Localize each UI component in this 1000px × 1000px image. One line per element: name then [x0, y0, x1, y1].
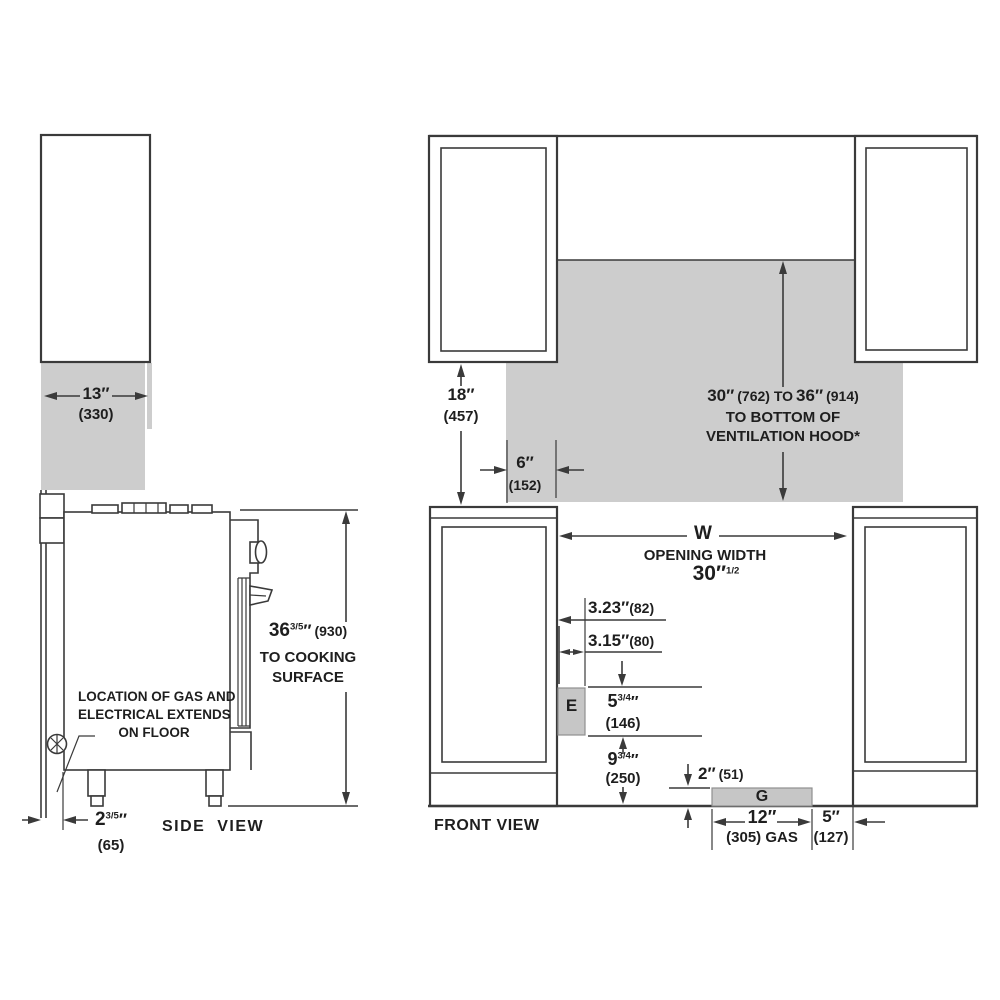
electrical-block-label: E [558, 697, 585, 715]
installation-diagram: 13″ (330) LOCATION OF GAS AND ELECTRICAL… [0, 0, 1000, 1000]
front-dim-9-3-4-value: 93/4″ [592, 750, 654, 770]
front-dim-6-metric: (152) [500, 478, 550, 493]
front-dim-3-23: 3.23″(82) [588, 599, 654, 618]
side-view-shaded-wall-area [41, 363, 152, 490]
gas-note-line2: ELECTRICAL EXTENDS [78, 708, 230, 722]
front-view-right-base-cabinet [853, 507, 977, 806]
front-view-left-base-cabinet [430, 507, 557, 806]
hood-dim-line2: TO BOTTOM OF [703, 410, 863, 426]
side-dim-36-value: 363/5″(930) [252, 621, 364, 641]
front-dim-9-3-4-metric: (250) [592, 771, 654, 787]
front-dim-12-metric: (305) GAS [712, 830, 812, 846]
front-view-right-wall-cabinet [855, 136, 977, 362]
front-view-left-wall-cabinet [429, 136, 557, 362]
control-knob-icon [250, 541, 267, 563]
front-dim-5in-metric: (127) [806, 830, 856, 846]
gas-note-line1: LOCATION OF GAS AND [78, 690, 230, 704]
side-dim-13-value: 13″ [64, 385, 128, 403]
technical-drawing [0, 0, 1000, 1000]
front-dim-9-3-4 [619, 787, 627, 804]
front-view-shaded-hood-area [506, 260, 903, 502]
front-dim-12-value: 12″ [722, 808, 802, 827]
front-dim-5-3-4-metric: (146) [592, 716, 654, 732]
side-dim-2-3-5 [22, 772, 88, 830]
door-handle-icon [250, 586, 272, 605]
front-view-label: FRONT VIEW [434, 818, 539, 835]
side-dim-2-3-5-value: 23/5″ [80, 810, 142, 830]
gas-note-line3: ON FLOOR [78, 726, 230, 740]
side-view-wall-cabinet [41, 135, 150, 362]
gas-electrical-symbol-icon [48, 734, 67, 754]
side-view-range-body [64, 503, 272, 806]
side-view-label: SIDE VIEW [162, 819, 264, 836]
hood-dim-line3: VENTILATION HOOD* [703, 429, 863, 445]
opening-width-symbol: W [688, 524, 718, 544]
front-dim-5in [853, 806, 885, 850]
front-dim-6-value: 6″ [500, 454, 550, 472]
opening-width-value: 30″1/2 [660, 563, 772, 585]
side-dim-36-line3: SURFACE [252, 670, 364, 686]
side-view-wall-line [40, 490, 64, 818]
gas-block-label: G [712, 789, 812, 806]
front-dim-2-value: 2″(51) [698, 765, 744, 784]
front-dim-5in-value: 5″ [808, 808, 854, 826]
side-dim-2-3-5-metric: (65) [80, 838, 142, 854]
front-dim-5-3-4-value: 53/4″ [592, 692, 654, 712]
side-dim-13-metric: (330) [64, 407, 128, 423]
hood-dim-line1: 30″(762) TO36″(914) [695, 387, 871, 406]
side-dim-36-line2: TO COOKING [252, 650, 364, 666]
front-dim-18-value: 18″ [432, 386, 490, 404]
front-dim-3-15: 3.15″(80) [588, 632, 654, 651]
front-dim-18-metric: (457) [432, 409, 490, 425]
